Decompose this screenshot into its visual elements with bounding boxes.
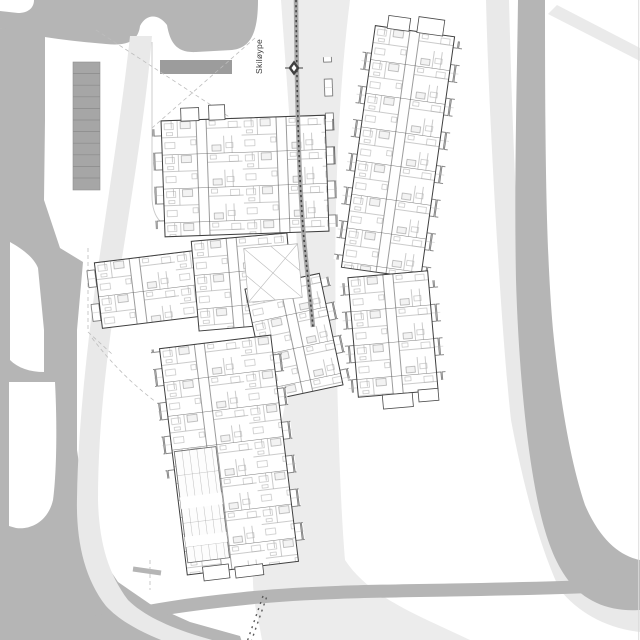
east-building-lower-section	[339, 270, 448, 412]
building-east	[332, 10, 465, 412]
site-plan-page: Skiløype	[0, 0, 640, 640]
east-building-upper-section	[332, 10, 465, 280]
surface-parking-strip	[73, 62, 100, 190]
plaza	[244, 244, 303, 303]
dark-surface-area	[160, 60, 232, 74]
west-building-west-slab	[85, 250, 209, 330]
site-plan-drawing: Skiløype	[0, 0, 640, 640]
ski-trail-label: Skiløype	[254, 39, 264, 74]
path-topright-diagonal	[548, 5, 640, 61]
left-road-white-island	[9, 382, 56, 528]
access-stub	[133, 569, 161, 573]
